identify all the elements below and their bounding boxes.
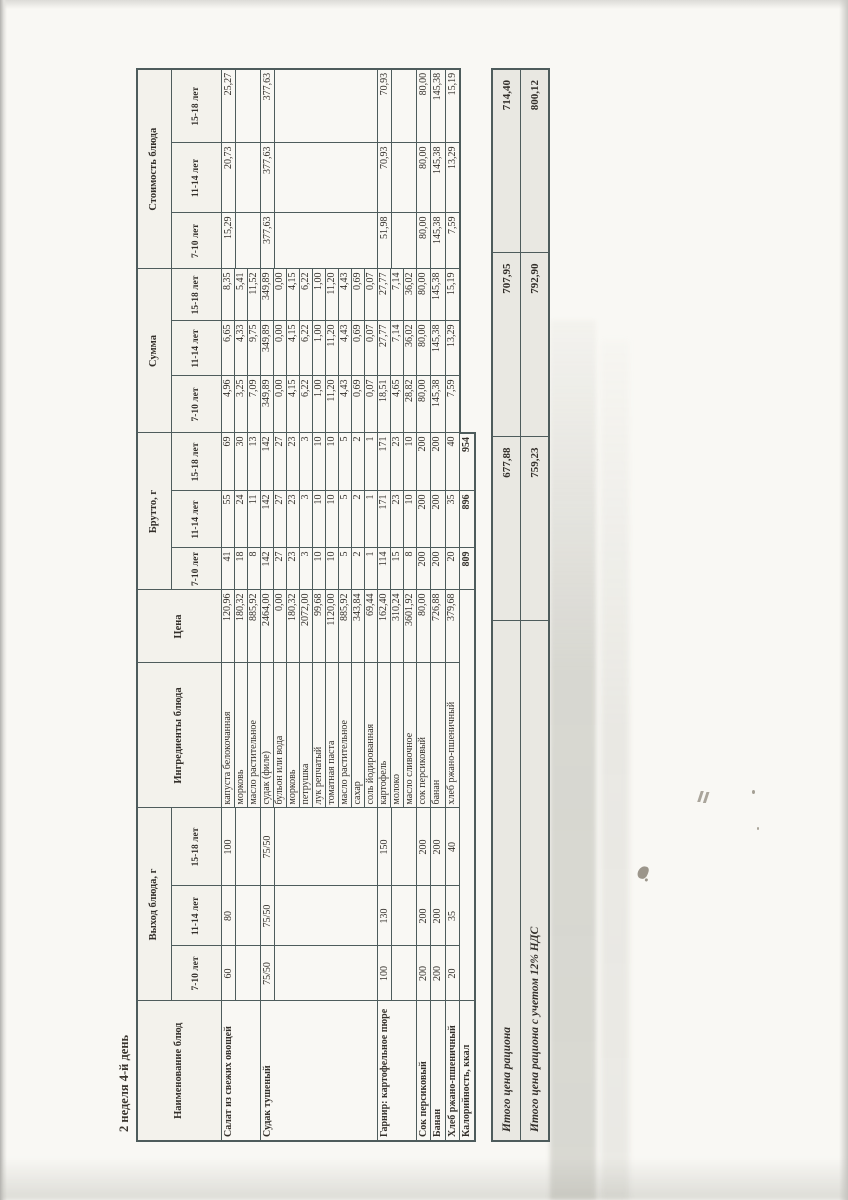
sum-cell: 0,69 <box>351 321 364 376</box>
yield-value: 200 <box>431 887 444 946</box>
cost-value: 80,00 <box>417 213 430 268</box>
gross-cell: 2 <box>351 548 364 590</box>
cost-cell: 145,38 <box>431 69 446 143</box>
totals-value: 714,40 <box>492 69 521 253</box>
sum-cell: 145,38 <box>431 269 446 321</box>
gross-cell: 5 <box>338 491 351 548</box>
gross-cell: 142 <box>260 491 273 548</box>
gross-cell: 69 <box>221 433 234 491</box>
dish-name-cell: Сок персиковый <box>416 1001 431 1141</box>
yield-value: 75/50 <box>261 947 275 1001</box>
ingredient-cell: томатная паста <box>325 663 338 808</box>
sum-cell: 11,20 <box>325 321 338 376</box>
totals-value: 759,23 <box>521 437 550 621</box>
sum-cell: 0,00 <box>273 376 286 433</box>
totals-row: Итого цена рациона 677,88 707,95 714,40 <box>492 69 521 1141</box>
yield-cell: 200 <box>416 886 431 946</box>
gross-cell: 10 <box>325 433 338 491</box>
cost-value: 80,00 <box>417 143 430 212</box>
gross-cell: 27 <box>273 548 286 590</box>
header-age-group: 7-10 лет <box>171 946 221 1001</box>
totals-value: 800,12 <box>521 69 550 253</box>
scan-streak <box>550 320 596 1200</box>
cost-cell: 51,98 <box>377 213 416 269</box>
sum-cell: 1,00 <box>312 269 325 321</box>
cost-value: 13,29 <box>446 143 459 212</box>
price-cell: 310,24 <box>390 590 403 663</box>
scan-mark <box>752 790 755 794</box>
ingredient-cell: капуста белокочанная <box>221 663 234 808</box>
calories-total: 809 <box>460 548 476 590</box>
price-cell: 180,32 <box>234 590 247 663</box>
yield-value: 130 <box>378 887 392 946</box>
gross-cell: 23 <box>390 491 403 548</box>
price-cell: 885,92 <box>247 590 260 663</box>
totals-label: Итого цена рациона с учетом 12% НДС <box>521 621 550 1141</box>
cost-cell: 70,93 <box>377 69 416 143</box>
sum-cell: 4,33 <box>234 321 247 376</box>
sum-cell: 7,14 <box>390 269 403 321</box>
yield-value: 40 <box>446 809 459 886</box>
cost-cell: 145,38 <box>431 143 446 213</box>
sum-cell: 349,89 <box>260 321 273 376</box>
calories-section: Калорийность, ккал 809 896 954 <box>460 69 476 1141</box>
table-row: Сок персиковый200200200сок персиковый80,… <box>416 69 431 1141</box>
ingredient-cell: морковь <box>286 663 299 808</box>
cost-cell: 80,00 <box>416 69 431 143</box>
header-name: Наименование блюд <box>137 1001 221 1141</box>
price-cell: 1120,00 <box>325 590 338 663</box>
sum-cell: 4,96 <box>221 376 234 433</box>
sum-cell: 0,07 <box>364 321 377 376</box>
table-row: Хлеб ржано-пшеничный203540хлеб ржано-пше… <box>445 69 460 1141</box>
gross-cell: 200 <box>416 548 431 590</box>
sum-cell: 8,35 <box>221 269 234 321</box>
gross-cell: 142 <box>260 548 273 590</box>
sum-cell: 0,00 <box>273 321 286 376</box>
sum-cell: 6,22 <box>299 321 312 376</box>
gross-cell: 200 <box>431 433 446 491</box>
gross-cell: 200 <box>416 433 431 491</box>
ingredient-cell: бульон или вода <box>273 663 286 808</box>
yield-value: 75/50 <box>261 809 275 886</box>
scan-streak <box>601 340 629 1200</box>
yield-cell: 80 <box>221 886 260 946</box>
sum-cell: 6,22 <box>299 376 312 433</box>
gross-cell: 200 <box>431 491 446 548</box>
gross-cell: 10 <box>312 491 325 548</box>
price-cell: 120,96 <box>221 590 234 663</box>
table-row: Гарнир: картофельное пюре100130150картоф… <box>377 69 390 1141</box>
gross-cell: 18 <box>234 548 247 590</box>
price-cell: 379,68 <box>445 590 460 663</box>
gross-cell: 114 <box>377 548 390 590</box>
page-edge-bottom <box>0 1158 848 1200</box>
price-cell: 2072,00 <box>299 590 312 663</box>
empty-region <box>460 69 476 433</box>
gross-cell: 5 <box>338 433 351 491</box>
price-cell: 162,40 <box>377 590 390 663</box>
dish-name-cell: Банан <box>431 1001 446 1141</box>
price-cell: 885,92 <box>338 590 351 663</box>
header-age-group: 15-18 лет <box>171 269 221 321</box>
sum-cell: 5,41 <box>234 269 247 321</box>
scan-mark <box>757 827 759 830</box>
menu-table: Наименование блюд Выход блюда, г Ингреди… <box>136 68 476 1142</box>
cost-cell: 13,29 <box>445 143 460 213</box>
price-cell: 180,32 <box>286 590 299 663</box>
yield-cell: 75/50 <box>260 886 377 946</box>
ingredient-cell: банан <box>431 663 446 808</box>
dish-name-cell: Салат из свежих овощей <box>221 1001 260 1141</box>
yield-cell: 20 <box>445 946 460 1001</box>
price-cell: 343,84 <box>351 590 364 663</box>
ingredient-cell: сок персиковый <box>416 663 431 808</box>
sum-cell: 6,65 <box>221 321 234 376</box>
gross-cell: 2 <box>351 433 364 491</box>
ingredient-cell: масло сливочное <box>403 663 416 808</box>
calories-label: Калорийность, ккал <box>460 1001 476 1141</box>
sum-cell: 6,22 <box>299 269 312 321</box>
yield-value: 200 <box>431 947 444 1001</box>
header-age-group: 15-18 лет <box>171 69 221 143</box>
gross-cell: 1 <box>364 491 377 548</box>
price-cell: 80,00 <box>416 590 431 663</box>
cost-cell: 145,38 <box>431 213 446 269</box>
gross-cell: 3 <box>299 433 312 491</box>
yield-value: 200 <box>417 947 430 1001</box>
sum-cell: 145,38 <box>431 376 446 433</box>
yield-cell: 60 <box>221 946 260 1001</box>
gross-cell: 23 <box>286 433 299 491</box>
header-age-group: 15-18 лет <box>171 433 221 491</box>
gross-cell: 10 <box>325 548 338 590</box>
cost-cell: 25,27 <box>221 69 260 143</box>
gross-cell: 27 <box>273 491 286 548</box>
ingredient-cell: судак (филе) <box>260 663 273 808</box>
sum-cell: 80,00 <box>416 376 431 433</box>
sum-cell: 9,75 <box>247 321 260 376</box>
table-row: Салат из свежих овощей6080100капуста бел… <box>221 69 234 1141</box>
page-edge-right <box>839 0 848 1200</box>
yield-value: 200 <box>417 887 430 946</box>
gross-cell: 20 <box>445 548 460 590</box>
yield-cell: 200 <box>431 808 446 886</box>
gross-cell: 55 <box>221 491 234 548</box>
sum-cell: 80,00 <box>416 321 431 376</box>
gross-cell: 8 <box>403 548 416 590</box>
sum-cell: 4,15 <box>286 376 299 433</box>
page-title: 2 неделя 4-й день <box>117 70 131 1132</box>
cost-value: 15,19 <box>446 70 459 143</box>
header-cost: Стоимость блюда <box>137 69 171 269</box>
price-cell: 3601,92 <box>403 590 416 663</box>
totals-label: Итого цена рациона <box>492 621 521 1141</box>
sum-cell: 36,02 <box>403 269 416 321</box>
gross-cell: 35 <box>445 491 460 548</box>
gross-cell: 15 <box>390 548 403 590</box>
yield-cell: 75/50 <box>260 808 377 886</box>
sum-cell: 7,14 <box>390 321 403 376</box>
ingredient-cell: масло растительное <box>247 663 260 808</box>
yield-value: 80 <box>222 887 236 946</box>
totals-value: 707,95 <box>492 253 521 437</box>
gross-cell: 40 <box>445 433 460 491</box>
cost-cell: 70,93 <box>377 143 416 213</box>
gross-cell: 41 <box>221 548 234 590</box>
gross-cell: 171 <box>377 433 390 491</box>
sum-cell: 1,00 <box>312 321 325 376</box>
cost-value: 145,38 <box>431 143 444 212</box>
sum-cell: 27,77 <box>377 269 390 321</box>
sum-cell: 13,29 <box>445 321 460 376</box>
cost-value: 51,98 <box>378 213 392 268</box>
header-age-group: 7-10 лет <box>171 376 221 433</box>
yield-value: 100 <box>222 809 236 886</box>
calories-total: 954 <box>460 433 476 491</box>
gross-cell: 5 <box>338 548 351 590</box>
cost-value: 15,29 <box>222 213 236 268</box>
sum-cell: 11,20 <box>325 376 338 433</box>
cost-value: 377,63 <box>261 143 275 212</box>
yield-value: 75/50 <box>261 887 275 946</box>
dish-name-cell: Хлеб ржано-пшеничный <box>445 1001 460 1141</box>
table-row: Банан200200200банан726,88200200200145,38… <box>431 69 446 1141</box>
gross-cell: 10 <box>403 491 416 548</box>
yield-cell: 130 <box>377 886 416 946</box>
gross-cell: 3 <box>299 491 312 548</box>
cost-cell: 20,73 <box>221 143 260 213</box>
sum-cell: 7,09 <box>247 376 260 433</box>
ingredient-cell: петрушка <box>299 663 312 808</box>
scan-mark <box>636 865 650 880</box>
price-cell: 726,88 <box>431 590 446 663</box>
header-price: Цена <box>137 590 221 663</box>
gross-cell: 171 <box>377 491 390 548</box>
sum-cell: 0,07 <box>364 376 377 433</box>
sum-cell: 4,43 <box>338 321 351 376</box>
yield-cell: 75/50 <box>260 946 377 1001</box>
cost-cell: 7,59 <box>445 213 460 269</box>
gross-cell: 142 <box>260 433 273 491</box>
cost-value: 377,63 <box>261 70 275 143</box>
ingredient-cell: масло растительное <box>338 663 351 808</box>
cost-value: 145,38 <box>431 70 444 143</box>
scanned-page: 2 неделя 4-й день Наименование блюд Выхо… <box>0 0 848 1200</box>
table-header: Наименование блюд Выход блюда, г Ингреди… <box>137 69 221 1141</box>
gross-cell: 23 <box>390 433 403 491</box>
gross-cell: 10 <box>325 491 338 548</box>
gross-cell: 13 <box>247 433 260 491</box>
sum-cell: 11,52 <box>247 269 260 321</box>
sum-cell: 0,69 <box>351 376 364 433</box>
yield-cell: 100 <box>221 808 260 886</box>
table-row: Судак тушеный75/5075/5075/50судак (филе)… <box>260 69 273 1141</box>
gross-cell: 10 <box>403 433 416 491</box>
page-edge-top <box>0 0 848 9</box>
yield-value: 35 <box>446 887 459 946</box>
yield-cell: 200 <box>416 946 431 1001</box>
page-edge-left <box>0 0 7 1200</box>
sum-cell: 0,00 <box>273 269 286 321</box>
totals-value: 677,88 <box>492 437 521 621</box>
dish-name-cell: Гарнир: картофельное пюре <box>377 1001 416 1141</box>
calories-total: 896 <box>460 491 476 548</box>
cost-value: 80,00 <box>417 70 430 143</box>
yield-cell: 150 <box>377 808 416 886</box>
gross-cell: 8 <box>247 548 260 590</box>
gross-cell: 10 <box>312 433 325 491</box>
sum-cell: 0,69 <box>351 269 364 321</box>
sum-cell: 36,02 <box>403 321 416 376</box>
gross-cell: 200 <box>431 548 446 590</box>
yield-cell: 200 <box>416 808 431 886</box>
ingredient-cell: хлеб ржано-пшеничный <box>445 663 460 808</box>
gross-cell: 27 <box>273 433 286 491</box>
cost-cell: 15,29 <box>221 213 260 269</box>
ingredient-cell: морковь <box>234 663 247 808</box>
cost-value: 20,73 <box>222 143 236 212</box>
sum-cell: 1,00 <box>312 376 325 433</box>
yield-value: 200 <box>417 809 430 886</box>
ingredient-cell: сахар <box>351 663 364 808</box>
ingredient-cell: соль йодированная <box>364 663 377 808</box>
header-age-group: 11-14 лет <box>171 143 221 213</box>
gross-cell: 30 <box>234 433 247 491</box>
calories-empty-cell <box>460 590 476 1001</box>
gross-cell: 3 <box>299 548 312 590</box>
yield-cell: 40 <box>445 808 460 886</box>
gross-cell: 23 <box>286 491 299 548</box>
sum-cell: 27,77 <box>377 321 390 376</box>
gross-cell: 11 <box>247 491 260 548</box>
rotated-document: 2 неделя 4-й день Наименование блюд Выхо… <box>117 70 550 1142</box>
yield-value: 60 <box>222 947 236 1001</box>
header-age-group: 11-14 лет <box>171 886 221 946</box>
sum-cell: 4,15 <box>286 269 299 321</box>
header-sum: Сумма <box>137 269 171 433</box>
header-group-row: Наименование блюд Выход блюда, г Ингреди… <box>137 69 171 1141</box>
cost-cell: 80,00 <box>416 213 431 269</box>
sum-cell: 11,20 <box>325 269 338 321</box>
cost-cell: 15,19 <box>445 69 460 143</box>
sum-cell: 349,89 <box>260 376 273 433</box>
totals-table: Итого цена рациона 677,88 707,95 714,40 … <box>491 68 550 1142</box>
yield-cell: 35 <box>445 886 460 946</box>
sum-cell: 4,15 <box>286 321 299 376</box>
totals-row: Итого цена рациона с учетом 12% НДС 759,… <box>521 69 550 1141</box>
header-yield: Выход блюда, г <box>137 808 171 1001</box>
sum-cell: 0,07 <box>364 269 377 321</box>
cost-value: 7,59 <box>446 213 459 268</box>
sum-cell: 80,00 <box>416 269 431 321</box>
yield-cell: 200 <box>431 946 446 1001</box>
gross-cell: 10 <box>312 548 325 590</box>
header-age-group: 11-14 лет <box>171 321 221 376</box>
header-age-group: 7-10 лет <box>171 213 221 269</box>
yield-value: 150 <box>378 809 392 886</box>
yield-value: 100 <box>378 947 392 1001</box>
ingredient-cell: молоко <box>390 663 403 808</box>
sum-cell: 28,82 <box>403 376 416 433</box>
gross-cell: 200 <box>416 491 431 548</box>
price-cell: 2464,00 <box>260 590 273 663</box>
cost-value: 70,93 <box>378 143 392 212</box>
menu-body: Салат из свежих овощей6080100капуста бел… <box>221 69 460 1141</box>
yield-cell: 100 <box>377 946 416 1001</box>
ingredient-cell: лук репчатый <box>312 663 325 808</box>
gross-cell: 23 <box>286 548 299 590</box>
cost-value: 25,27 <box>222 70 236 143</box>
yield-value: 200 <box>431 809 444 886</box>
header-ingredients: Ингредиенты блюда <box>137 663 221 808</box>
cost-cell: 377,63 <box>260 213 377 269</box>
cost-cell: 377,63 <box>260 143 377 213</box>
totals-value: 792,90 <box>521 253 550 437</box>
header-age-group: 7-10 лет <box>171 548 221 590</box>
sum-cell: 145,38 <box>431 321 446 376</box>
ingredient-cell: картофель <box>377 663 390 808</box>
cost-value: 377,63 <box>261 213 275 268</box>
sum-cell: 15,19 <box>445 269 460 321</box>
gross-cell: 24 <box>234 491 247 548</box>
sum-cell: 4,43 <box>338 269 351 321</box>
cost-value: 70,93 <box>378 70 392 143</box>
yield-value: 20 <box>446 947 459 1001</box>
scan-mark <box>697 791 704 802</box>
yield-cell: 200 <box>431 886 446 946</box>
gross-cell: 1 <box>364 433 377 491</box>
price-cell: 0,00 <box>273 590 286 663</box>
sum-cell: 7,59 <box>445 376 460 433</box>
cost-value: 145,38 <box>431 213 444 268</box>
cost-cell: 377,63 <box>260 69 377 143</box>
dish-name-cell: Судак тушеный <box>260 1001 377 1141</box>
header-gross: Брутто, г <box>137 433 171 590</box>
cost-cell: 80,00 <box>416 143 431 213</box>
header-age-group: 15-18 лет <box>171 808 221 886</box>
sum-cell: 4,43 <box>338 376 351 433</box>
gross-cell: 2 <box>351 491 364 548</box>
price-cell: 99,68 <box>312 590 325 663</box>
sum-cell: 349,89 <box>260 269 273 321</box>
calories-row: Калорийность, ккал 809 896 954 <box>460 69 476 1141</box>
sum-cell: 4,65 <box>390 376 403 433</box>
sum-cell: 3,25 <box>234 376 247 433</box>
price-cell: 69,44 <box>364 590 377 663</box>
header-age-group: 11-14 лет <box>171 491 221 548</box>
sum-cell: 18,51 <box>377 376 390 433</box>
gross-cell: 1 <box>364 548 377 590</box>
